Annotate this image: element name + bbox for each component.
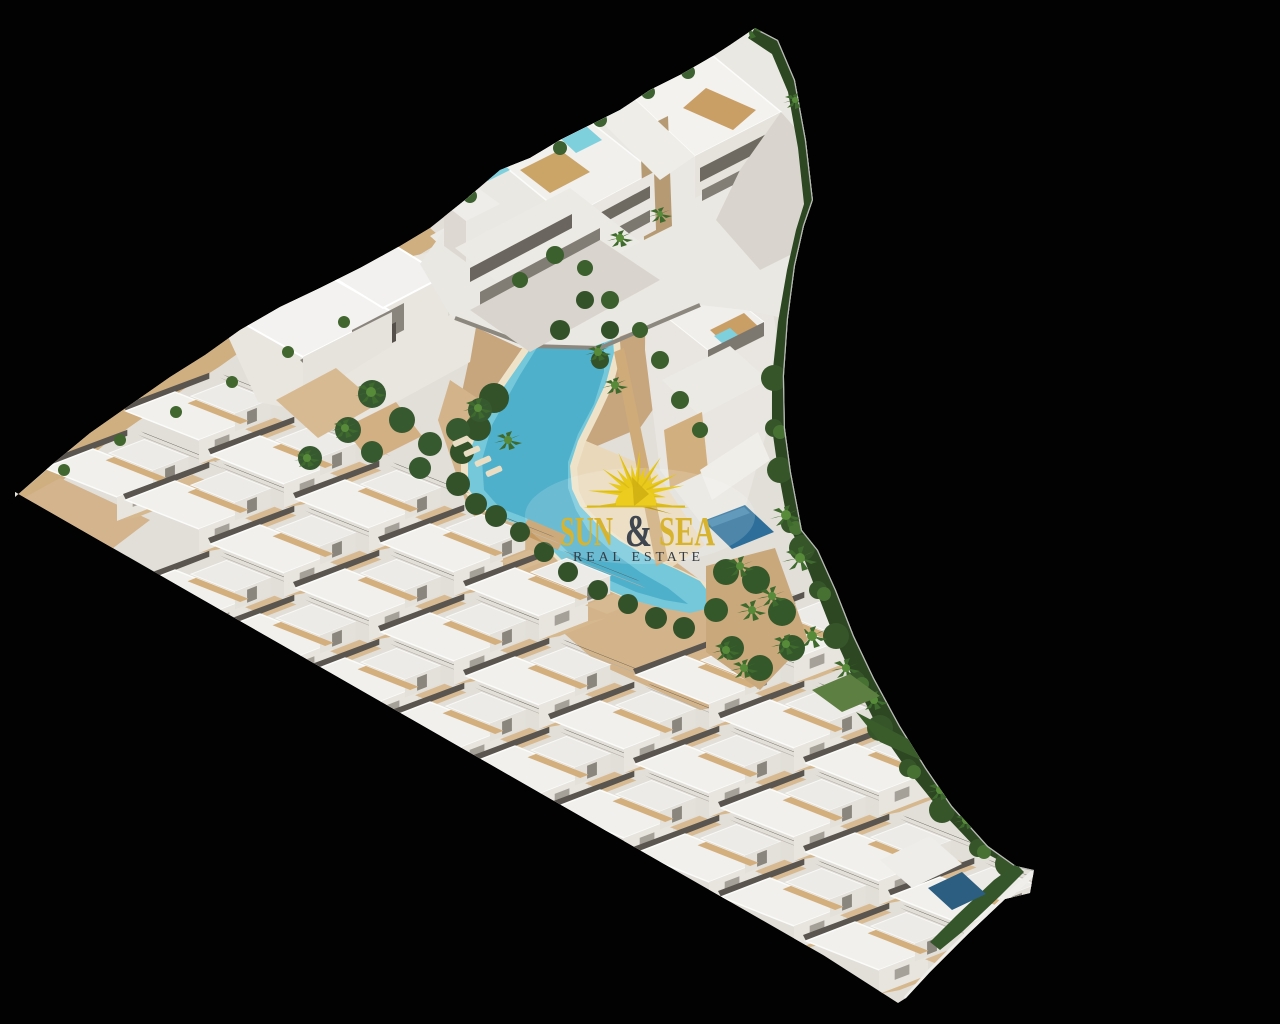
svg-text:REAL ESTATE: REAL ESTATE bbox=[573, 550, 700, 565]
svg-text:&: & bbox=[625, 506, 652, 556]
svg-text:SUN: SUN bbox=[560, 508, 613, 554]
svg-text:SEA: SEA bbox=[659, 508, 715, 554]
